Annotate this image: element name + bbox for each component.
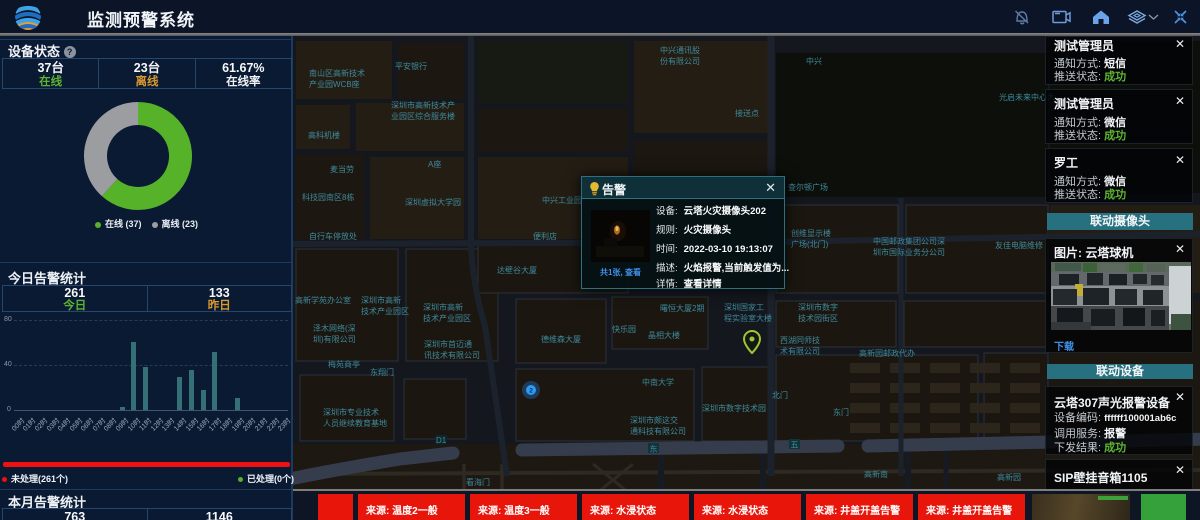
svg-text:产业园WCB座: 产业园WCB座 <box>309 79 360 89</box>
svg-text:程实验室大楼: 程实验室大楼 <box>724 313 772 323</box>
svg-text:查尔顿广场: 查尔顿广场 <box>788 182 828 192</box>
svg-text:中南大学: 中南大学 <box>642 377 674 387</box>
svg-text:五: 五 <box>791 441 799 450</box>
svg-text:东门: 东门 <box>833 407 849 417</box>
svg-text:A座: A座 <box>428 159 441 169</box>
svg-text:份有限公司: 份有限公司 <box>660 56 700 66</box>
svg-text:深圳市高新技术产: 深圳市高新技术产 <box>391 100 455 110</box>
svg-text:东: 东 <box>650 444 658 454</box>
svg-text:南山区高新技术: 南山区高新技术 <box>309 68 365 78</box>
svg-text:中兴工业园: 中兴工业园 <box>542 195 582 205</box>
svg-text:技术园街区: 技术园街区 <box>798 313 838 323</box>
svg-text:高新学苑办公室: 高新学苑办公室 <box>295 295 351 305</box>
svg-text:圳市国际业务分公司: 圳市国际业务分公司 <box>873 247 945 257</box>
svg-text:深圳市高新: 深圳市高新 <box>361 295 401 305</box>
svg-text:中国邮政集团公司深: 中国邮政集团公司深 <box>873 236 945 246</box>
svg-text:高新园: 高新园 <box>997 472 1021 482</box>
svg-text:术有限公司: 术有限公司 <box>780 346 820 356</box>
svg-text:接送点: 接送点 <box>735 108 759 118</box>
svg-text:人员继续教育基地: 人员继续教育基地 <box>323 418 387 428</box>
svg-text:深圳虚拟大学园: 深圳虚拟大学园 <box>405 197 461 207</box>
svg-text:深圳市高新: 深圳市高新 <box>423 302 463 312</box>
svg-text:通科技有限公司: 通科技有限公司 <box>630 426 686 436</box>
svg-text:圳)有限公司: 圳)有限公司 <box>313 334 356 344</box>
svg-text:东翔门: 东翔门 <box>370 367 394 377</box>
svg-text:晶相大楼: 晶相大楼 <box>648 330 680 340</box>
svg-text:讯技术有限公司: 讯技术有限公司 <box>424 350 480 360</box>
svg-text:麦当劳: 麦当劳 <box>330 164 354 174</box>
svg-text:深圳国家工: 深圳国家工 <box>724 302 764 312</box>
svg-text:深圳市数字技术园: 深圳市数字技术园 <box>702 403 766 413</box>
svg-text:深圳市颇这交: 深圳市颇这交 <box>630 415 678 425</box>
svg-text:技术产业园区: 技术产业园区 <box>423 313 471 323</box>
svg-text:广场(北门): 广场(北门) <box>791 239 829 249</box>
svg-text:梅苑商亭: 梅苑商亭 <box>328 359 360 369</box>
svg-text:深圳市首迈通: 深圳市首迈通 <box>424 339 472 349</box>
svg-text:西湖同师技: 西湖同师技 <box>780 335 820 345</box>
svg-text:深圳市数字: 深圳市数字 <box>798 302 838 312</box>
svg-text:中兴: 中兴 <box>806 56 822 66</box>
svg-text:业园区综合服务楼: 业园区综合服务楼 <box>391 111 455 121</box>
svg-text:中兴通讯股: 中兴通讯股 <box>660 45 700 55</box>
svg-text:泽木网络(深: 泽木网络(深 <box>313 323 356 333</box>
svg-text:曙恒大厦2期: 曙恒大厦2期 <box>660 303 704 313</box>
svg-text:快乐园: 快乐园 <box>612 324 636 334</box>
svg-text:创维显示楼: 创维显示楼 <box>791 228 831 238</box>
svg-text:便利店: 便利店 <box>533 231 557 241</box>
svg-text:看海门: 看海门 <box>466 477 490 487</box>
svg-text:高新园邮政代办: 高新园邮政代办 <box>859 348 915 358</box>
svg-text:友佳电脑维修: 友佳电脑维修 <box>995 240 1043 250</box>
svg-text:科技园南区8栋: 科技园南区8栋 <box>302 192 354 202</box>
svg-text:D1: D1 <box>436 436 447 445</box>
svg-text:高科机楼: 高科机楼 <box>308 130 340 140</box>
svg-text:技术产业园区: 技术产业园区 <box>361 306 409 316</box>
svg-text:北门: 北门 <box>772 390 788 400</box>
svg-text:平安银行: 平安银行 <box>395 61 427 71</box>
svg-text:德维森大厦: 德维森大厦 <box>541 334 581 344</box>
svg-text:2: 2 <box>529 388 533 395</box>
svg-text:高新南: 高新南 <box>864 469 888 479</box>
svg-text:达壁谷大厦: 达壁谷大厦 <box>497 265 537 275</box>
svg-text:自行车停放处: 自行车停放处 <box>309 231 357 241</box>
svg-text:深圳市专业技术: 深圳市专业技术 <box>323 407 379 417</box>
